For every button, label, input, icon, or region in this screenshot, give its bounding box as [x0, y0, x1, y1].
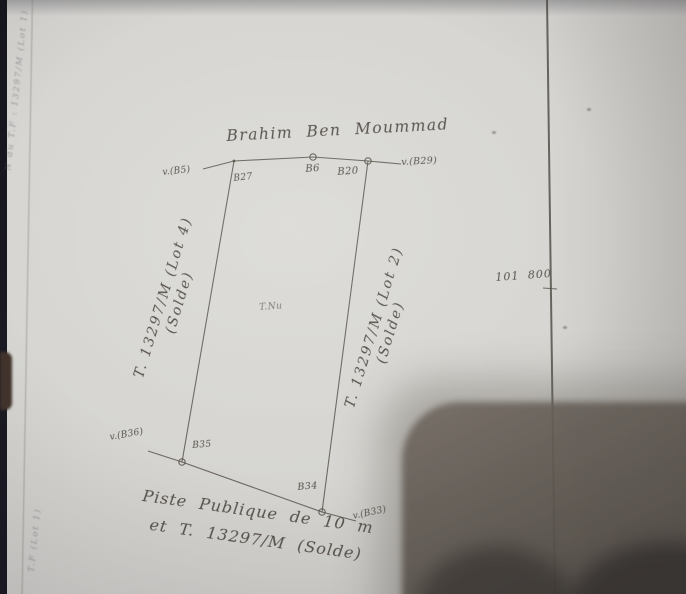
paper-speck [492, 131, 496, 134]
camera-shadow-dark-blob [567, 542, 686, 594]
survey-point-marker-b27 [233, 160, 236, 163]
extension-line-v-b29 [368, 161, 401, 164]
parcel-boundary [182, 157, 368, 512]
photo-left-edge [0, 0, 7, 594]
point-label-b34: B34 [297, 480, 318, 493]
point-label-b20: B20 [337, 166, 359, 178]
paper-speck [563, 326, 567, 329]
point-label-b6: B6 [305, 163, 320, 175]
point-label-b35: B35 [192, 440, 212, 451]
camera-shadow [402, 402, 686, 594]
land-use-label: T.Nu [259, 301, 283, 313]
paper-speck [587, 108, 591, 111]
witness-mark-v-b29: v.(B29) [401, 155, 437, 168]
extension-line-v-b36 [148, 451, 182, 462]
photo-of-survey-plan: Brahim Ben Moummad v.(B5) B27 B6 B20 v.(… [0, 0, 686, 594]
grid-tick [543, 288, 557, 289]
photo-left-edge-blob [0, 352, 12, 410]
point-label-b27: B27 [233, 172, 253, 184]
camera-shadow-dark-blob [417, 547, 577, 594]
extension-line-v-b5 [203, 161, 234, 169]
